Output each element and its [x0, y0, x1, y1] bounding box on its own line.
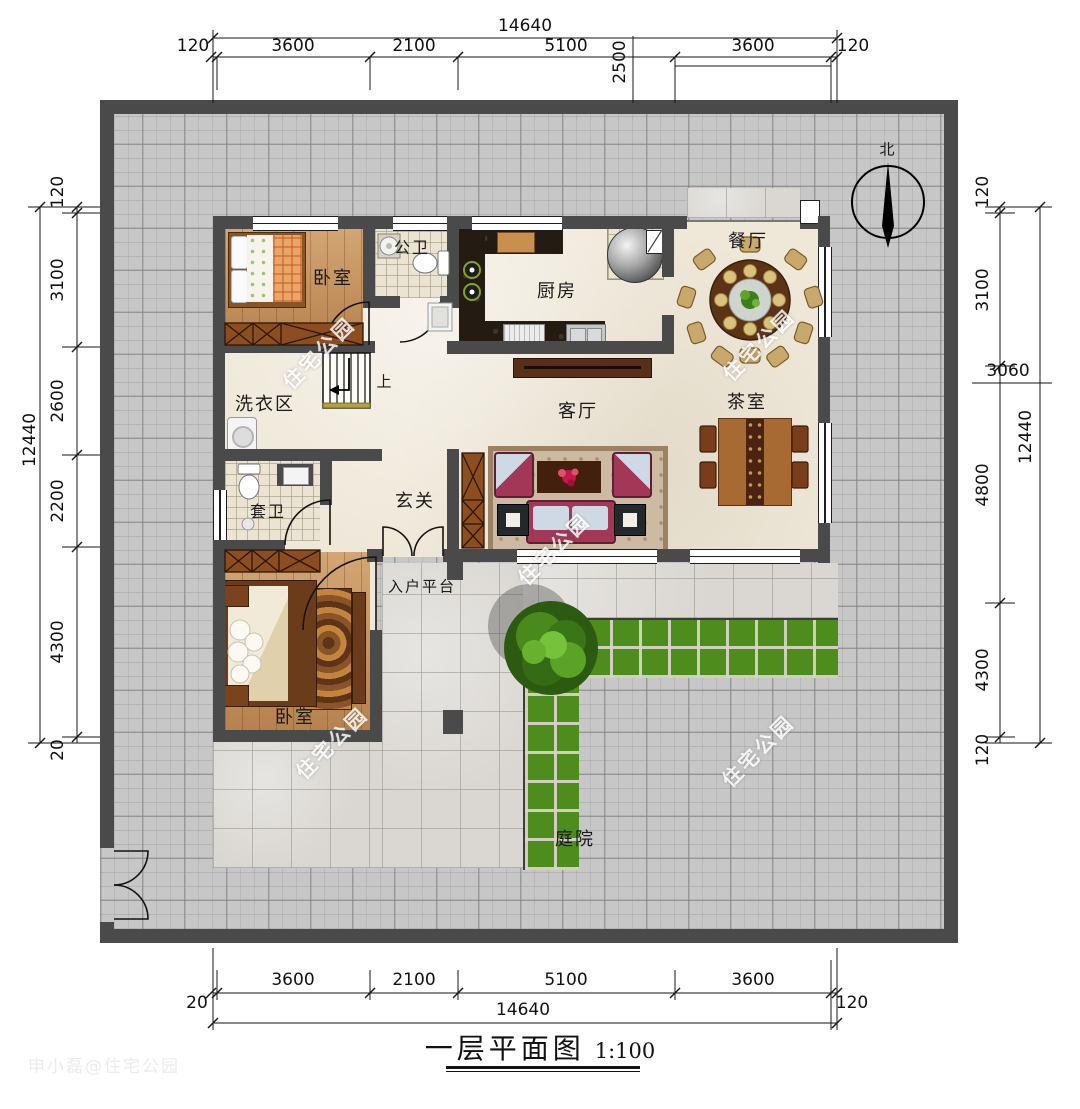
dim-label: 3100 [48, 258, 68, 301]
dim-label: 5100 [544, 970, 587, 990]
wall [363, 296, 400, 308]
wall [213, 341, 375, 353]
dim-label: 3600 [731, 36, 774, 56]
room-label-tea: 茶室 [727, 388, 767, 414]
wall [818, 337, 830, 423]
window-tea-south [690, 549, 800, 564]
side-table-top [506, 513, 520, 527]
room-label-bath-public: 公卫 [394, 234, 430, 258]
tv-screen [524, 366, 641, 369]
north-label: 北 [879, 139, 894, 160]
wall [818, 216, 830, 247]
side-table-left [497, 504, 529, 536]
wall [662, 216, 674, 277]
side-table-right [614, 504, 646, 536]
wall [363, 216, 375, 302]
wall [370, 549, 382, 557]
dim-label: 2100 [392, 970, 435, 990]
bedroom-bench [352, 592, 366, 704]
bed-blanket [273, 235, 302, 302]
wall [440, 296, 459, 308]
room-label-bath-ensuite: 套卫 [250, 498, 286, 522]
wall [447, 341, 674, 354]
wall [213, 540, 225, 742]
platform-pillar-bottom [443, 710, 463, 734]
dim-ticks-right [995, 202, 1045, 748]
dim-label: 4800 [973, 463, 993, 506]
dim-top-total: 14640 [498, 16, 552, 36]
room-label-laundry: 洗衣区 [235, 390, 295, 416]
ensuite-basin [283, 467, 309, 485]
drawing-title: 一层平面图1:100 [425, 1027, 656, 1067]
wall [657, 549, 690, 562]
dim-label: 3600 [731, 970, 774, 990]
wall [320, 449, 332, 505]
room-label-kitchen: 厨房 [537, 277, 577, 303]
dim-label: 4300 [48, 620, 68, 663]
dim-label: 2100 [392, 36, 435, 56]
wall [213, 449, 382, 461]
window-tea [818, 423, 832, 523]
dim-label-vertical: 2500 [610, 40, 630, 83]
bed-top [228, 232, 306, 308]
dim-label: 3600 [271, 36, 314, 56]
site-wall-bottom [100, 929, 958, 943]
title-underline-2 [446, 1071, 640, 1072]
room-label-bedroom-bottom: 卧室 [275, 703, 315, 729]
dim-bottom-total: 14640 [496, 1000, 550, 1020]
wall [370, 630, 382, 742]
room-label-bedroom-top: 卧室 [313, 264, 353, 290]
dim-label: 5100 [544, 36, 587, 56]
room-label-dining: 餐厅 [728, 227, 768, 253]
wall [447, 449, 459, 563]
cutting-board [497, 232, 535, 253]
dim-label: 2200 [48, 479, 68, 522]
dim-label: 120 [48, 176, 68, 208]
north-entry-platform [687, 188, 800, 218]
side-table-top [623, 513, 637, 527]
dim-label: 120 [177, 36, 209, 56]
dim-label: 120 [837, 36, 869, 56]
room-label-foyer: 玄关 [395, 487, 435, 513]
dim-right-extra: 3060 [986, 361, 1029, 381]
pillow [231, 236, 248, 269]
window-kitchen [472, 216, 562, 231]
site-wall-left-lower [100, 922, 114, 943]
tea-table [718, 418, 792, 506]
wall [225, 540, 285, 552]
dim-label: 2600 [48, 379, 68, 422]
window-bath [393, 216, 448, 231]
title-text: 一层平面图 [425, 1032, 585, 1065]
nightstand-bottom [223, 685, 249, 707]
dim-right-total: 12440 [1016, 410, 1036, 464]
dim-label: 120 [973, 734, 993, 766]
table-runner [746, 419, 764, 505]
armchair-right [612, 452, 652, 498]
coffee-table [537, 461, 601, 493]
room-label-courtyard: 庭院 [555, 825, 595, 851]
window-ensuite [213, 490, 227, 540]
tv-cabinet [513, 358, 652, 378]
ensuite-vanity [277, 464, 313, 486]
wall [800, 549, 830, 562]
dim-label: 4300 [973, 648, 993, 691]
dim-label: 3600 [271, 970, 314, 990]
washer-drum [232, 426, 254, 448]
dim-label: 120 [836, 993, 868, 1013]
window-dining [818, 247, 832, 337]
title-underline [446, 1066, 640, 1069]
bed-sheet [247, 235, 273, 302]
dim-left-total: 12440 [20, 413, 40, 467]
north-door-panel [800, 200, 820, 224]
dim-label: 20 [186, 993, 208, 1013]
dim-label: 3100 [973, 268, 993, 311]
nightstand-top [223, 585, 249, 607]
dim-label: 120 [973, 176, 993, 208]
title-scale: 1:100 [595, 1039, 656, 1063]
site-wall-top [100, 100, 958, 114]
window-bedroom-top [253, 216, 338, 231]
credit-watermark: 申小磊@住宅公园 [28, 1052, 180, 1077]
pillow [231, 270, 248, 303]
room-label-entry-platform: 入户平台 [388, 576, 456, 597]
wall [447, 216, 459, 308]
dim-label: 20 [48, 739, 68, 761]
floor-plan-canvas: 卧室 公卫 厨房 餐厅 茶室 客厅 洗衣区 套卫 玄关 入户平台 卧室 庭院 上… [0, 0, 1080, 1109]
site-wall-left-upper [100, 100, 114, 848]
room-label-living: 客厅 [558, 397, 598, 423]
stairs-up-label: 上 [376, 371, 393, 392]
armchair-left [494, 452, 534, 498]
site-wall-right [944, 100, 958, 943]
